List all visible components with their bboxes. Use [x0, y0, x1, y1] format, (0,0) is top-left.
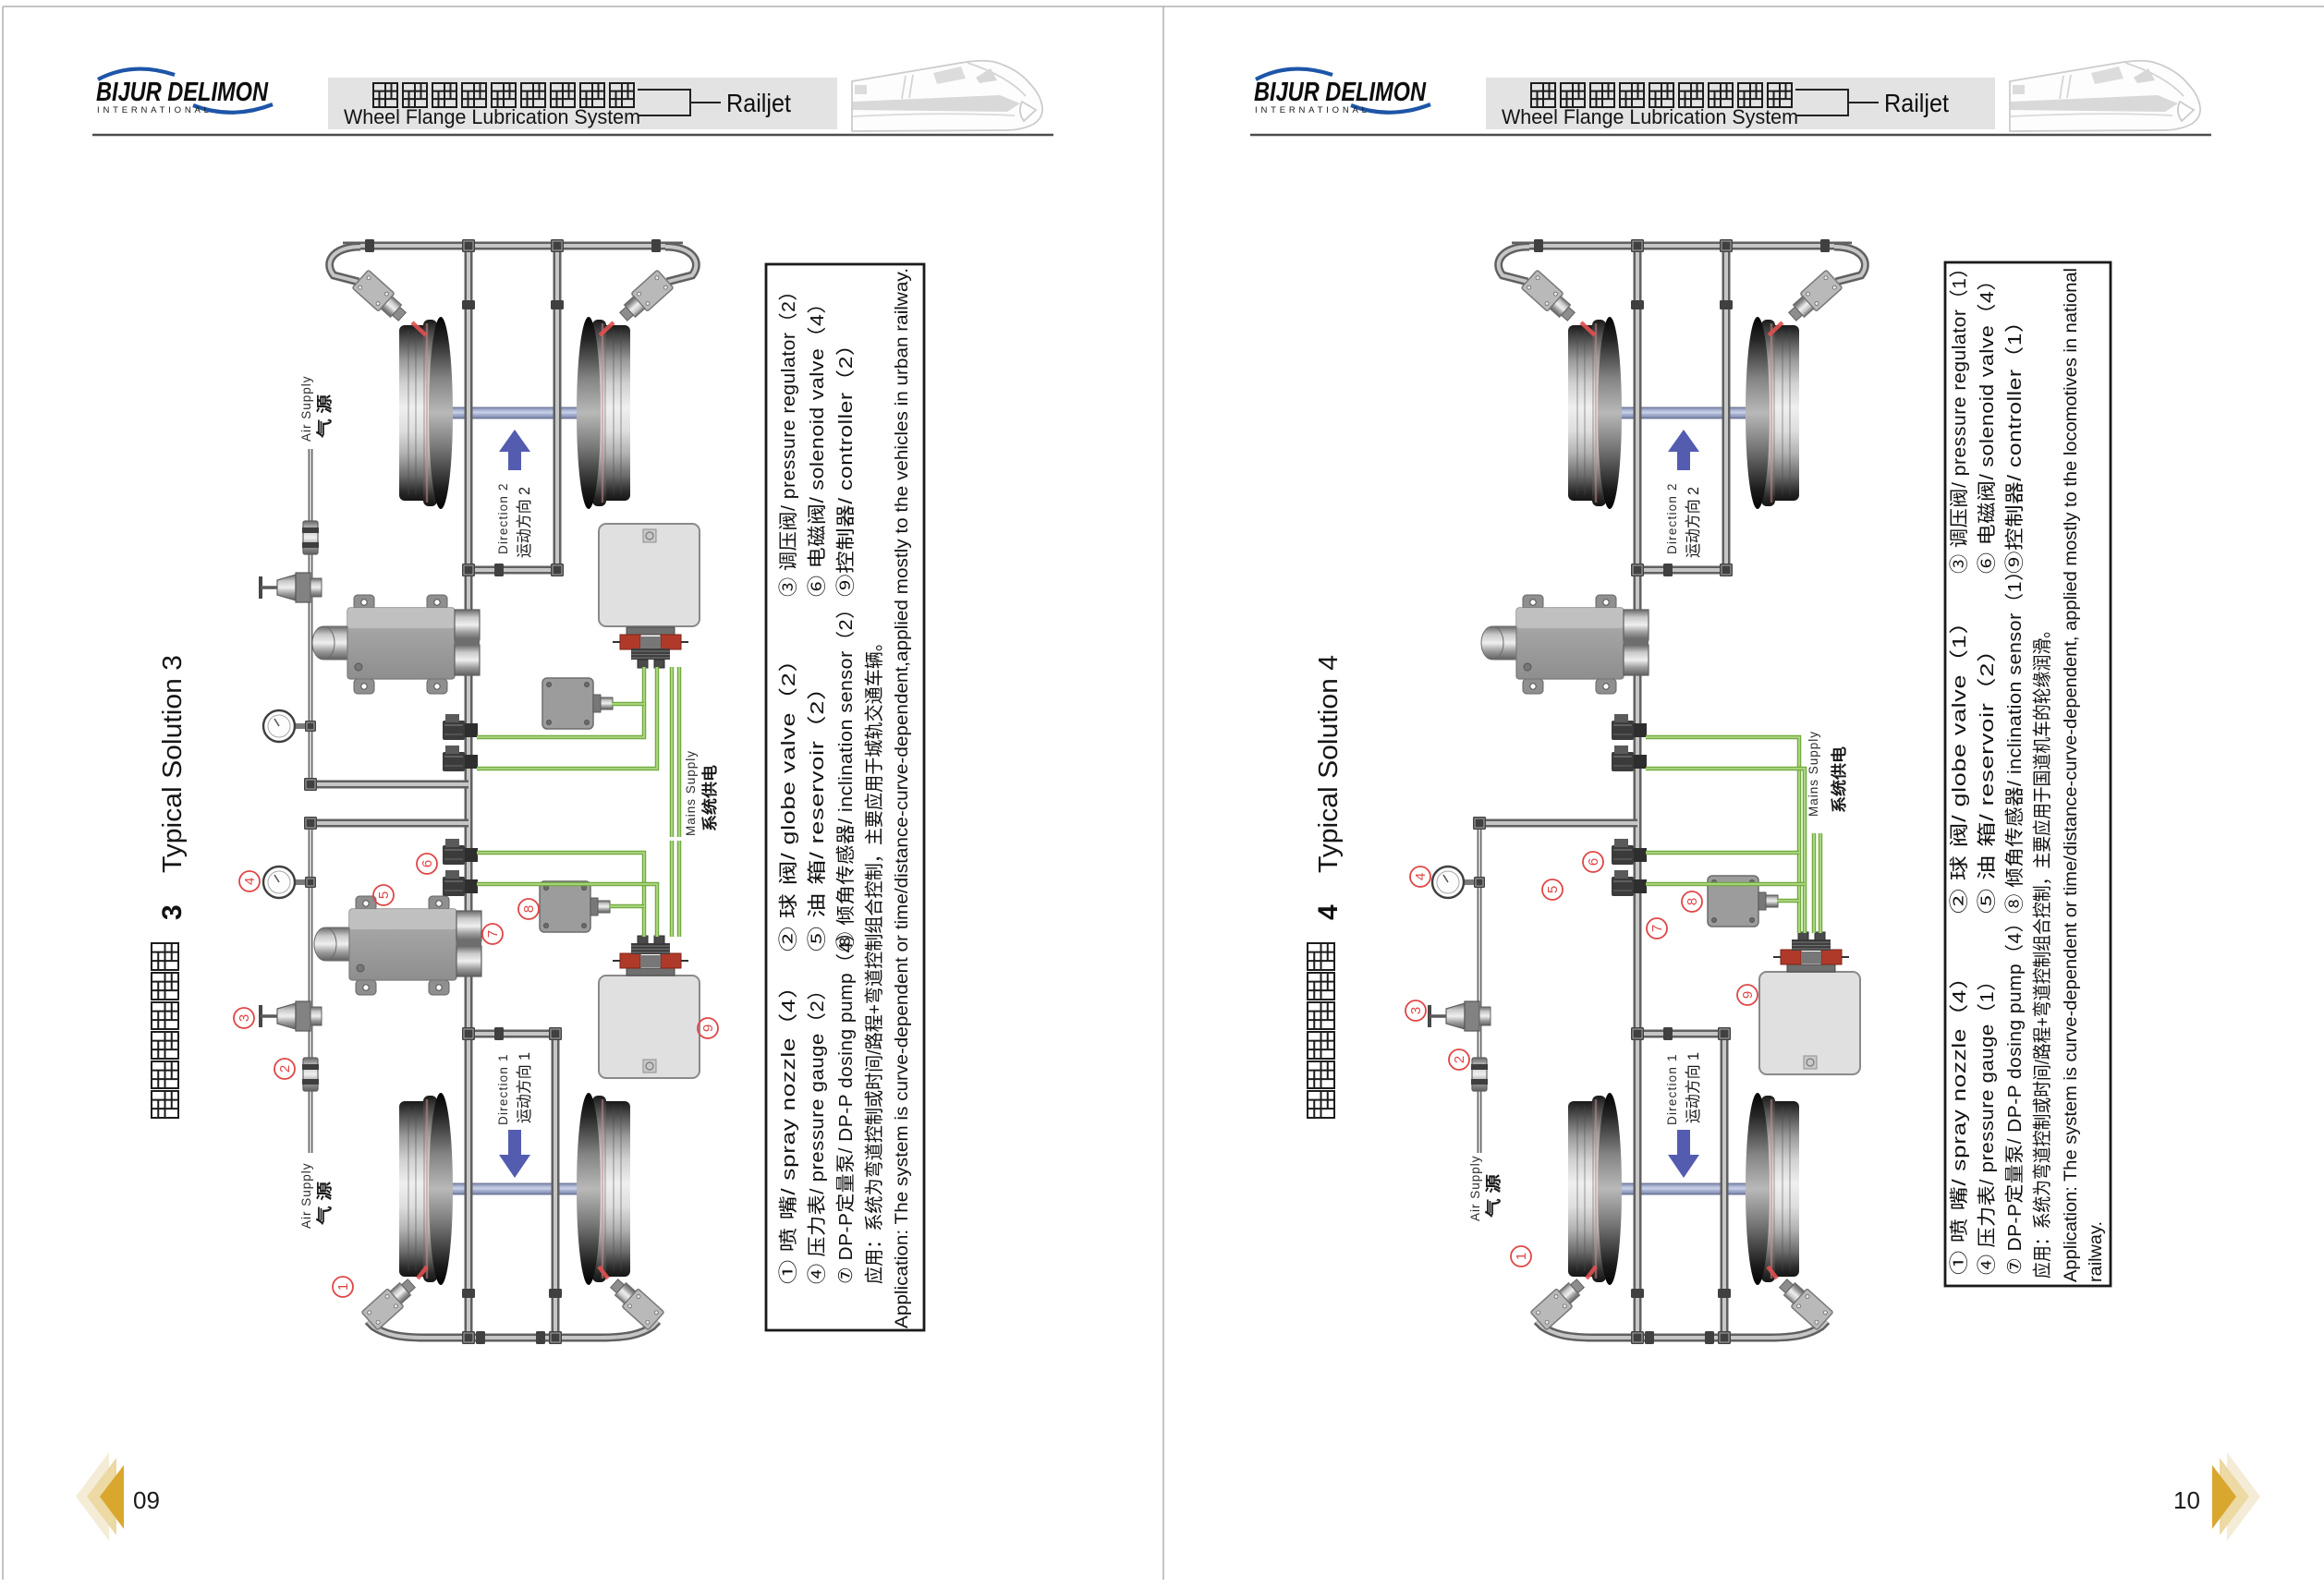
svg-text:③ 调压阀/ pressure regulator（2）: ③ 调压阀/ pressure regulator（2）: [778, 281, 799, 597]
svg-text:INTERNATIONAL: INTERNATIONAL: [1255, 105, 1370, 115]
svg-text:运动方向 1: 运动方向 1: [1685, 1052, 1702, 1123]
svg-text:9: 9: [1740, 991, 1756, 999]
svg-text:运动方向 1: 运动方向 1: [516, 1052, 533, 1123]
svg-text:4: 4: [1413, 873, 1429, 880]
svg-text:Air Supply: Air Supply: [299, 375, 313, 442]
svg-text:Application: The system is cur: Application: The system is curve-depende…: [2062, 268, 2081, 1282]
svg-text:Mains Supply: Mains Supply: [684, 750, 698, 836]
svg-text:运动方向 2: 运动方向 2: [516, 487, 533, 558]
svg-text:⑥ 电磁阀/ solenoid valve（4）: ⑥ 电磁阀/ solenoid valve（4）: [1977, 269, 1998, 574]
svg-text:⑥ 电磁阀/ solenoid valve（4）: ⑥ 电磁阀/ solenoid valve（4）: [807, 292, 828, 597]
svg-text:应用：系统为弯道控制或时间/路程+弯道控制组合控制，主要应用: 应用：系统为弯道控制或时间/路程+弯道控制组合控制，主要应用于国道机车的轮缘润滑…: [2032, 622, 2053, 1279]
svg-text:气 源: 气 源: [315, 1182, 334, 1226]
svg-text:⑦ DP-P定量泵/ DP-P dosing pump（4）: ⑦ DP-P定量泵/ DP-P dosing pump（4）: [2004, 913, 2026, 1275]
svg-text:09: 09: [133, 1486, 160, 1514]
svg-text:④ 压力表/ pressure gauge（2）: ④ 压力表/ pressure gauge（2）: [807, 979, 828, 1284]
svg-text:2: 2: [1452, 1056, 1467, 1063]
svg-text:BIJUR DELIMON: BIJUR DELIMON: [96, 78, 269, 107]
svg-text:3: 3: [157, 904, 188, 920]
svg-text:Direction 1: Direction 1: [1665, 1053, 1679, 1125]
svg-text:Typical Solution 3: Typical Solution 3: [158, 655, 188, 873]
svg-text:INTERNATIONAL: INTERNATIONAL: [97, 105, 213, 115]
svg-text:③ 调压阀/ pressure regulator（1）: ③ 调压阀/ pressure regulator（1）: [1949, 258, 1970, 574]
svg-text:⑧ 倾角传感器/ inclination sensor（1）: ⑧ 倾角传感器/ inclination sensor（1）: [2004, 561, 2026, 914]
svg-text:4: 4: [1313, 904, 1344, 920]
svg-text:1: 1: [335, 1283, 351, 1291]
svg-text:6: 6: [420, 860, 435, 867]
svg-text:1: 1: [1514, 1253, 1529, 1260]
svg-text:Direction 2: Direction 2: [496, 482, 510, 554]
svg-text:② 球 阀/ globe valve（2）: ② 球 阀/ globe valve（2）: [778, 647, 799, 952]
svg-text:⑦ DP-P定量泵/ DP-P dosing pump（4）: ⑦ DP-P定量泵/ DP-P dosing pump（4）: [835, 922, 857, 1284]
svg-text:10: 10: [2173, 1486, 2200, 1514]
svg-text:Typical Solution 4: Typical Solution 4: [1314, 655, 1344, 873]
svg-text:⑤ 油 箱/ reservoir（2）: ⑤ 油 箱/ reservoir（2）: [1977, 636, 1998, 914]
svg-text:Air Supply: Air Supply: [1468, 1155, 1482, 1221]
svg-text:8: 8: [1685, 898, 1700, 905]
svg-text:Mains Supply: Mains Supply: [1807, 731, 1820, 817]
svg-text:9: 9: [700, 1024, 716, 1032]
svg-text:3: 3: [1408, 1007, 1424, 1014]
svg-text:系统供电: 系统供电: [1830, 746, 1848, 813]
svg-text:Wheel Flange Lubrication Syste: Wheel Flange Lubrication System: [344, 105, 640, 128]
svg-text:4: 4: [242, 878, 258, 885]
svg-text:Direction 1: Direction 1: [496, 1053, 510, 1125]
svg-text:⑧ 倾角传感器/ inclination sensor（2）: ⑧ 倾角传感器/ inclination sensor（2）: [835, 599, 857, 952]
svg-text:5: 5: [1545, 886, 1561, 893]
svg-text:8: 8: [521, 905, 537, 913]
svg-text:⑨控制器/ controller（2）: ⑨控制器/ controller（2）: [835, 333, 857, 597]
svg-text:Railjet: Railjet: [1884, 89, 1949, 117]
svg-text:Direction 2: Direction 2: [1665, 482, 1679, 554]
svg-text:Application: The system is cur: Application: The system is curve-depende…: [893, 268, 912, 1328]
svg-text:BIJUR DELIMON: BIJUR DELIMON: [1254, 78, 1427, 107]
svg-text:3: 3: [237, 1014, 252, 1022]
svg-text:④ 压力表/ pressure gauge（1）: ④ 压力表/ pressure gauge（1）: [1977, 970, 1998, 1275]
svg-text:Wheel Flange Lubrication Syste: Wheel Flange Lubrication System: [1502, 105, 1798, 128]
svg-text:2: 2: [277, 1065, 293, 1073]
svg-text:② 球 阀/ globe valve（1）: ② 球 阀/ globe valve（1）: [1949, 609, 1970, 914]
svg-text:Air Supply: Air Supply: [299, 1162, 313, 1229]
svg-text:① 喷 嘴/ spray nozzle（4）: ① 喷 嘴/ spray nozzle（4）: [1949, 964, 1970, 1275]
svg-text:7: 7: [1649, 925, 1665, 932]
svg-text:5: 5: [376, 891, 392, 899]
svg-text:① 喷 嘴/ spray nozzle（4）: ① 喷 嘴/ spray nozzle（4）: [778, 974, 799, 1284]
svg-text:气 源: 气 源: [1484, 1174, 1503, 1218]
svg-text:气 源: 气 源: [315, 394, 334, 439]
svg-text:⑨控制器/ controller（1）: ⑨控制器/ controller（1）: [2004, 309, 2026, 574]
svg-text:运动方向 2: 运动方向 2: [1685, 487, 1702, 558]
svg-text:系统供电: 系统供电: [700, 765, 719, 831]
svg-text:应用：系统为弯道控制或时间/路程+弯道控制组合控制，主要应用: 应用：系统为弯道控制或时间/路程+弯道控制组合控制，主要应用于城轨交通车辆。: [864, 634, 885, 1284]
svg-text:⑤ 油 箱/ reservoir（2）: ⑤ 油 箱/ reservoir（2）: [807, 674, 828, 952]
svg-text:railway.: railway.: [2087, 1221, 2106, 1282]
svg-text:Railjet: Railjet: [726, 89, 791, 117]
svg-text:6: 6: [1586, 858, 1601, 866]
svg-text:7: 7: [485, 930, 501, 938]
